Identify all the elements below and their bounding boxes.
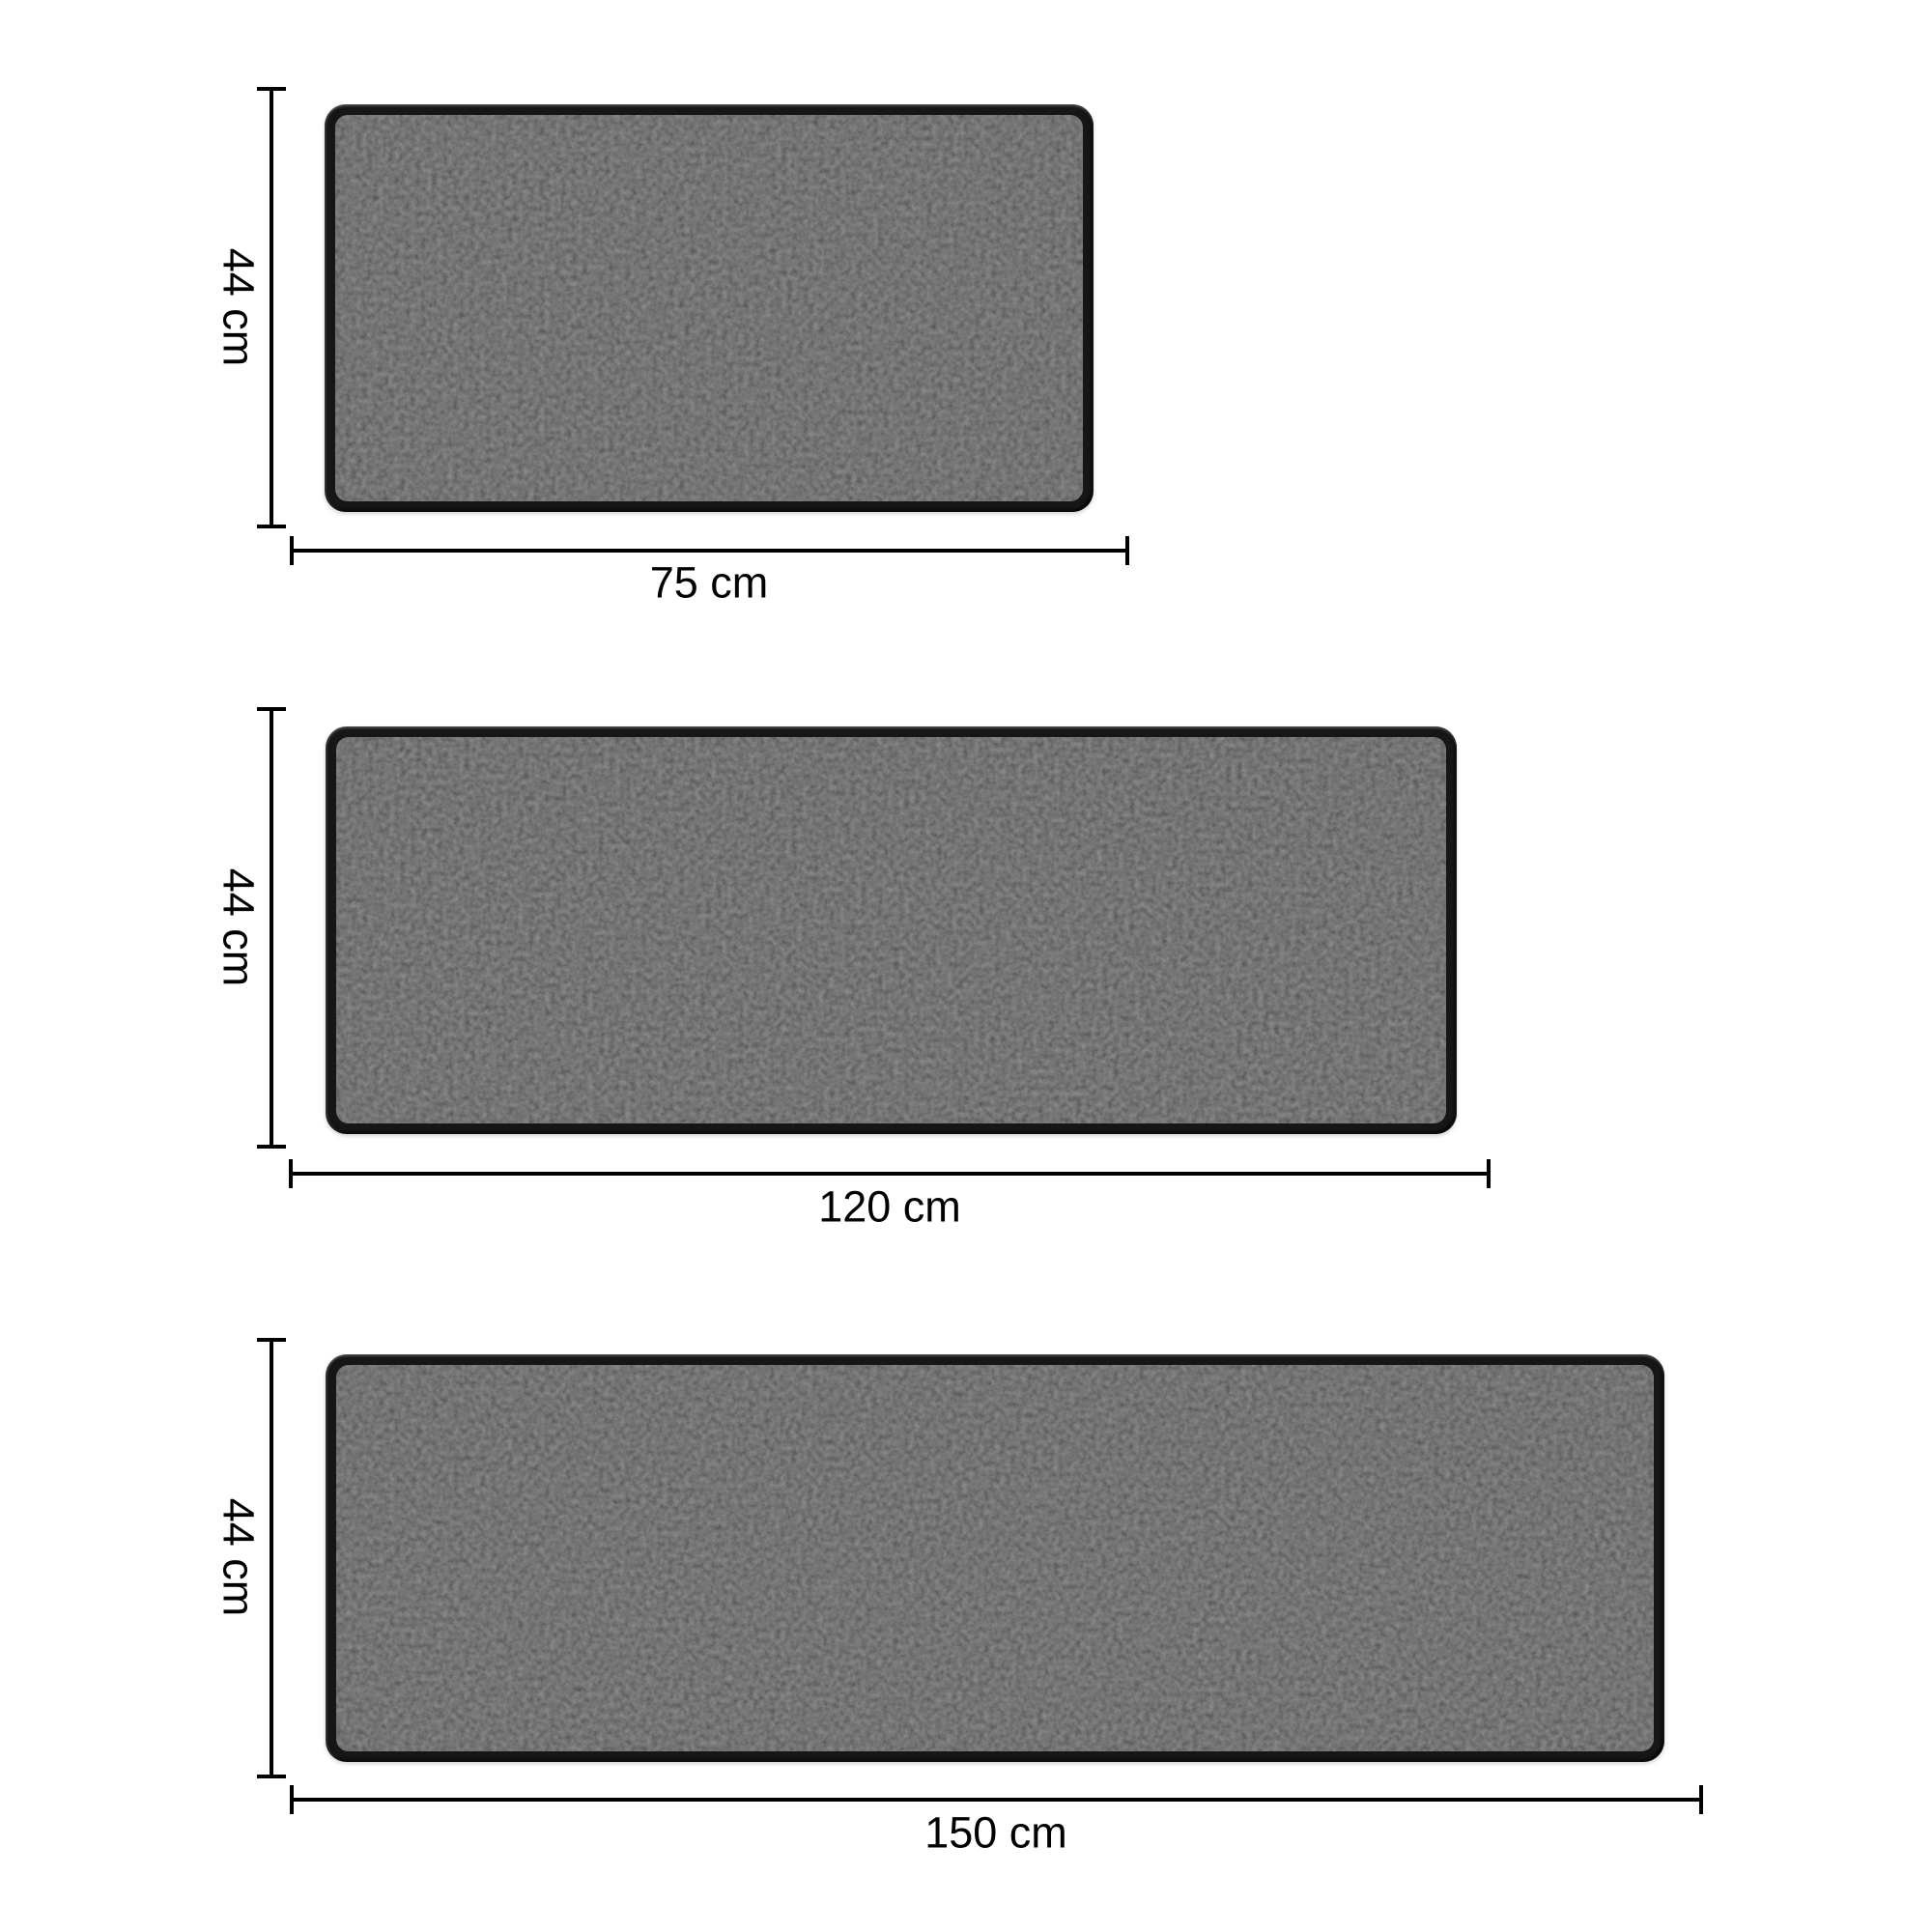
mat-120cm-surface-texture: [336, 737, 1446, 1123]
height-label-mat2: 44 cm: [217, 868, 261, 987]
mat-texture-noise: [336, 737, 1446, 1123]
mat-150cm-surface-texture: [336, 1365, 1654, 1751]
mat-75cm-surface-texture: [335, 115, 1083, 501]
height-dimension-line-mat3: [270, 1338, 273, 1778]
product-dimension-diagram: 44 cm 75 cm: [0, 0, 1932, 1932]
height-dimension-line-mat2: [270, 707, 273, 1149]
width-label-mat2: 120 cm: [818, 1185, 961, 1229]
mat-150cm: [326, 1354, 1664, 1762]
width-label-mat1: 75 cm: [650, 561, 769, 605]
mat-texture-noise: [335, 115, 1083, 501]
width-dimension-line-mat3: [290, 1798, 1703, 1802]
height-label-mat1: 44 cm: [217, 248, 261, 367]
height-label-mat3: 44 cm: [217, 1498, 261, 1617]
width-label-mat3: 150 cm: [924, 1811, 1067, 1855]
width-dimension-line-mat2: [289, 1172, 1491, 1176]
width-dimension-line-mat1: [290, 549, 1129, 553]
mat-75cm: [325, 104, 1094, 512]
height-dimension-line-mat1: [270, 87, 273, 528]
mat-texture-noise: [336, 1365, 1654, 1751]
mat-120cm: [326, 726, 1457, 1134]
